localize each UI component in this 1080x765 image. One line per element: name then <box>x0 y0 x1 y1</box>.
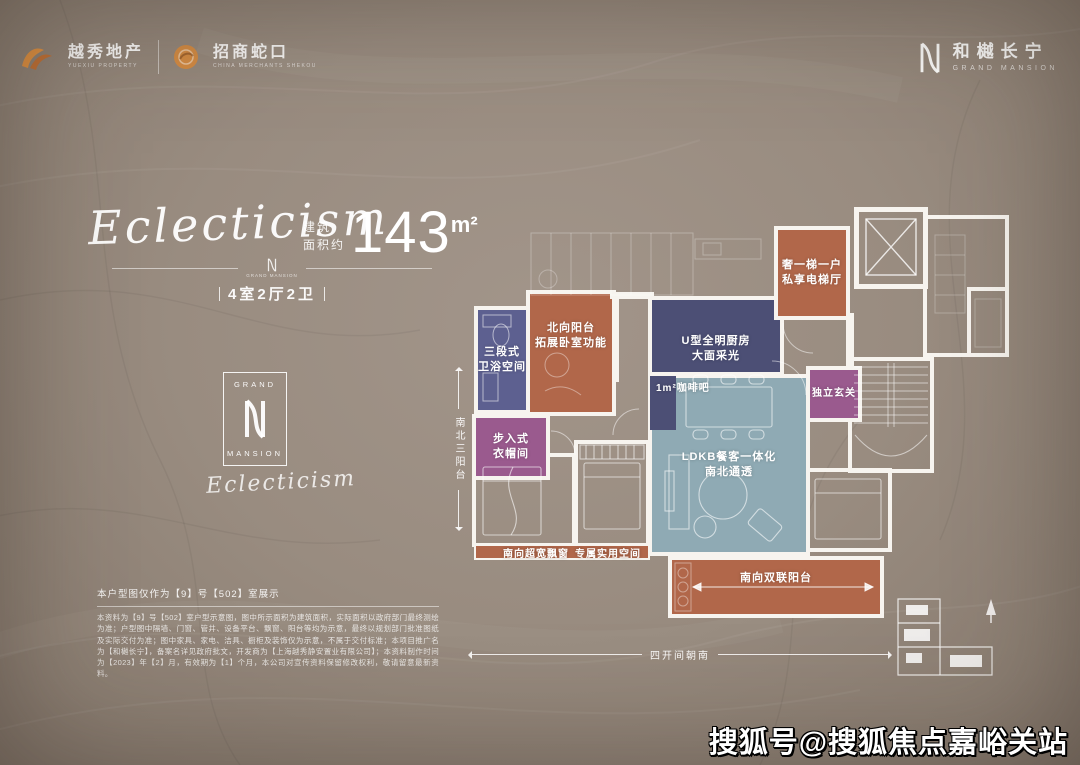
room-elevator-hall: 奢一梯一户 私享电梯厅 <box>774 226 850 320</box>
emblem-word-mansion: MANSION <box>227 449 283 458</box>
dimension-line <box>458 490 459 528</box>
foyer-label: 独立玄关 <box>812 387 856 401</box>
zhaoshang-logo-name: 招商蛇口 <box>213 44 317 62</box>
zhaoshang-logo-sub: CHINA MERCHANTS SHEKOU <box>213 64 317 70</box>
arrow-down-icon <box>455 527 463 531</box>
wall-strip <box>613 292 619 382</box>
unit-spec: 4室2厅2卫 <box>112 283 432 304</box>
elevator-hall-label: 奢一梯一户 私享电梯厅 <box>782 258 842 289</box>
header-left-logos: 越秀地产 YUEXIU PROPERTY 招商蛇口 CHINA MERCHANT… <box>20 40 317 74</box>
dimension-west-label: 南北三阳台 <box>451 409 466 490</box>
service-room <box>967 287 1009 357</box>
spec-text: 4室2厅2卫 <box>228 283 316 304</box>
room-kitchen: U型全明厨房 大面采光 <box>648 296 784 376</box>
coffee-bar-label: 1m²咖啡吧 <box>656 379 710 394</box>
zhaoshang-logo-icon <box>173 44 199 70</box>
dimension-line <box>718 654 888 655</box>
north-balcony-label: 北向阳台 拓展卧室功能 <box>535 321 607 352</box>
spec-bar-left <box>219 287 220 301</box>
brand-sub: GRAND MANSION <box>953 65 1058 73</box>
spec-bar-right <box>324 287 325 301</box>
area-prefix: 建筑 面积约 <box>303 218 345 254</box>
room-north-balcony: 北向阳台 拓展卧室功能 <box>526 290 616 416</box>
site-key-plan <box>890 593 1002 693</box>
dimension-south-label: 四开间朝南 <box>642 647 718 662</box>
sohu-watermark: 搜狐号@搜狐焦点嘉峪关站 <box>709 719 1068 761</box>
footer-divider <box>97 606 439 607</box>
closet-label: 步入式 衣帽间 <box>493 432 529 463</box>
header-logo-divider <box>158 40 159 74</box>
divider-line-right <box>306 268 432 269</box>
ldk-label: LDKB餐客一体化 南北通透 <box>682 450 777 481</box>
area-value: 143 <box>351 206 451 259</box>
yuexiu-logo-sub: YUEXIU PROPERTY <box>68 64 144 70</box>
legal-disclaimer: 本资料为【9】号【502】室户型示意图，图中所示面积为建筑面积，实际面积以政府部… <box>97 612 439 680</box>
divider-mini-emblem: GRAND MANSION <box>246 258 298 278</box>
mini-monogram-icon <box>266 258 278 272</box>
divider-caption: GRAND MANSION <box>246 273 298 278</box>
dimension-line <box>458 371 459 409</box>
yuexiu-logo-icon <box>20 42 54 72</box>
room-walkin-closet: 步入式 衣帽间 <box>472 414 550 480</box>
bay-window-label: 南向超宽飘窗 <box>503 545 569 560</box>
divider-line-left <box>112 268 238 269</box>
brand-name: 和樾长宁 <box>953 43 1058 62</box>
room-south-balcony: 南向双联阳台 <box>668 556 884 618</box>
dimension-south-width: 四开间朝南 <box>468 647 892 662</box>
emblem-monogram-icon <box>241 399 269 439</box>
bathroom-label: 三段式 卫浴空间 <box>478 345 526 376</box>
room-bathroom: 三段式 卫浴空间 <box>474 306 530 414</box>
yuexiu-logo-name: 越秀地产 <box>68 44 144 62</box>
brand-logo: 和樾长宁 GRAND MANSION <box>917 42 1058 74</box>
elevator-shaft <box>854 207 928 289</box>
footer-text-block: 本户型图仅作为【9】号【502】室展示 本资料为【9】号【502】室户型示意图，… <box>97 586 439 680</box>
dimension-west-balconies: 南北三阳台 <box>451 367 466 531</box>
emblem-word-grand: GRAND <box>234 380 276 389</box>
dimension-line <box>472 654 642 655</box>
hero-divider: GRAND MANSION <box>112 258 432 278</box>
north-arrow-icon <box>986 599 996 623</box>
grand-mansion-emblem: GRAND MANSION <box>223 372 287 466</box>
kitchen-label: U型全明厨房 大面采光 <box>682 334 751 365</box>
wall-strip <box>846 313 854 369</box>
emblem-script-text: Eclecticism <box>205 466 356 499</box>
area-figure: 建筑 面积约 143 m² <box>303 206 478 259</box>
utility-label: 专属实用空间 <box>575 545 641 560</box>
room-foyer: 独立玄关 <box>806 366 862 422</box>
bedroom-southeast <box>806 468 892 552</box>
unit-display-note: 本户型图仅作为【9】号【502】室展示 <box>97 586 439 600</box>
bedroom-south-center <box>574 440 650 547</box>
south-balcony-label: 南向双联阳台 <box>740 571 812 586</box>
grand-mansion-monogram-icon <box>917 42 943 74</box>
